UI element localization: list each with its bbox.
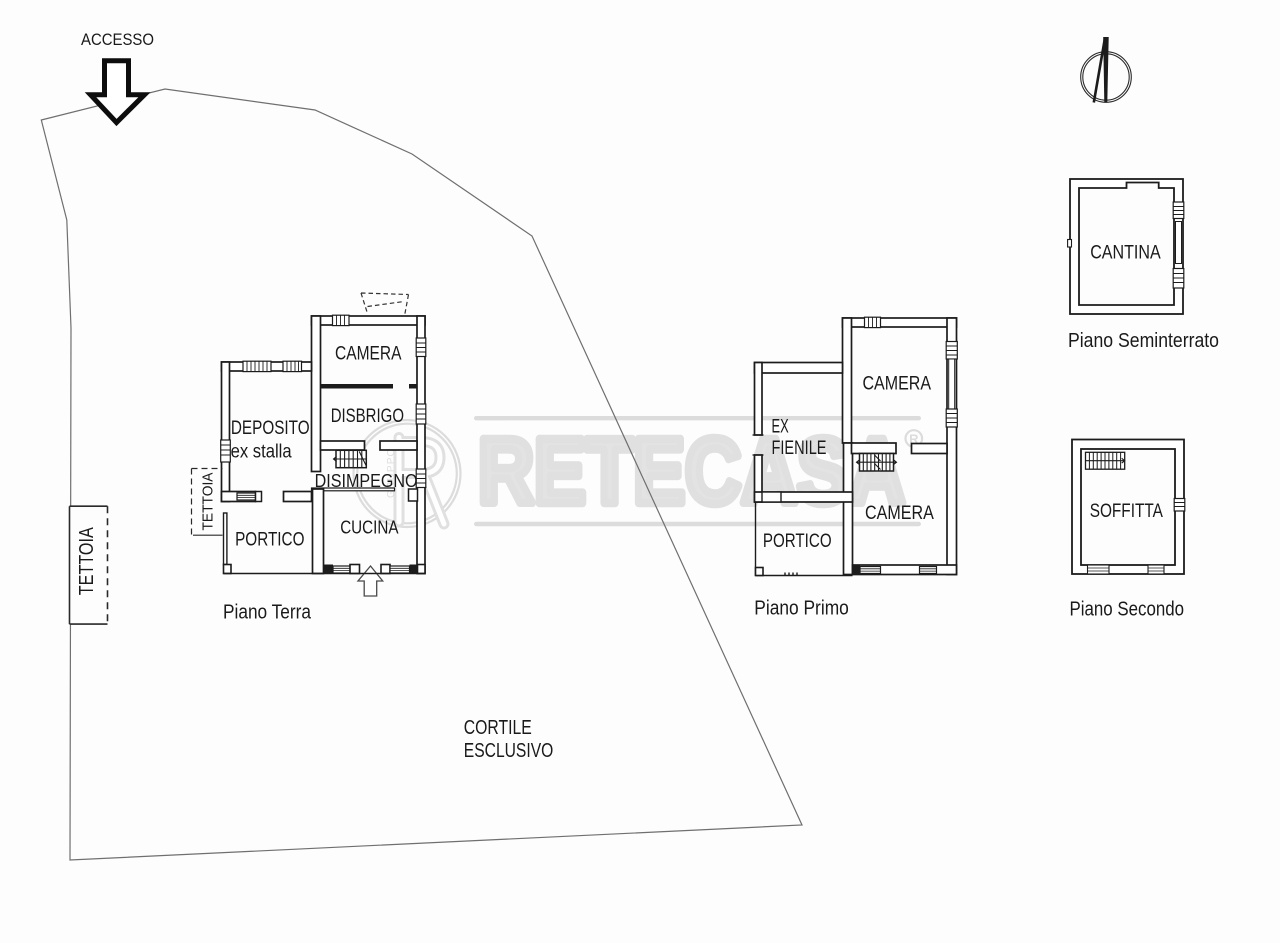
svg-text:EX: EX bbox=[772, 417, 789, 438]
svg-text:DEPOSITO: DEPOSITO bbox=[231, 418, 310, 439]
svg-text:RETECASA: RETECASA bbox=[478, 419, 905, 523]
svg-text:PORTICO: PORTICO bbox=[763, 531, 832, 552]
svg-text:TETTOIA: TETTOIA bbox=[201, 472, 217, 530]
svg-text:CUCINA: CUCINA bbox=[340, 517, 399, 538]
svg-text:Piano Seminterrato: Piano Seminterrato bbox=[1068, 329, 1219, 352]
svg-text:Piano Secondo: Piano Secondo bbox=[1070, 598, 1185, 621]
svg-text:Piano Primo: Piano Primo bbox=[754, 597, 849, 620]
svg-text:ESCLUSIVO: ESCLUSIVO bbox=[464, 740, 554, 762]
svg-text:CORTILE: CORTILE bbox=[464, 717, 532, 739]
svg-text:ex stalla: ex stalla bbox=[231, 442, 292, 463]
svg-text:CANTINA: CANTINA bbox=[1090, 242, 1161, 264]
svg-text:CAMERA: CAMERA bbox=[335, 344, 402, 365]
svg-text:CAMERA: CAMERA bbox=[865, 503, 934, 524]
svg-text:ACCESSO: ACCESSO bbox=[81, 31, 154, 49]
svg-text:TETTOIA: TETTOIA bbox=[76, 527, 98, 596]
svg-text:PORTICO: PORTICO bbox=[235, 529, 304, 550]
svg-text:DISBRIGO: DISBRIGO bbox=[331, 406, 404, 427]
svg-text:CAMERA: CAMERA bbox=[863, 373, 932, 394]
svg-text:SOFFITTA: SOFFITTA bbox=[1090, 500, 1163, 522]
svg-text:FIENILE: FIENILE bbox=[772, 438, 827, 459]
svg-text:Piano Terra: Piano Terra bbox=[223, 601, 311, 624]
